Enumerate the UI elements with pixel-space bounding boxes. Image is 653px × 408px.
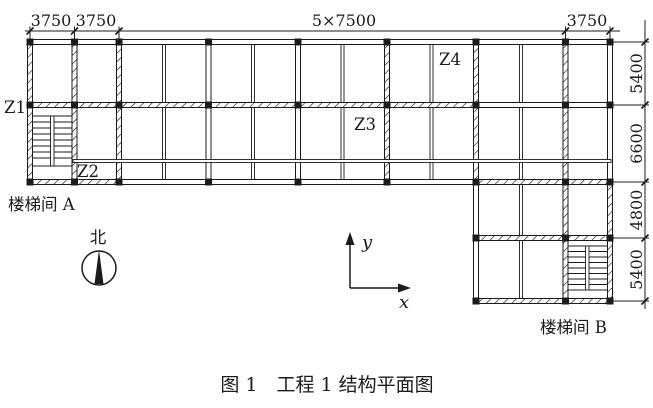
structural-plan-figure: 3750 3750 5×7500 3750 5400 6600 4800 540… bbox=[0, 0, 653, 408]
column-label-z4: Z4 bbox=[439, 50, 461, 69]
compass-needle-icon bbox=[95, 250, 104, 284]
y-axis-arrow-icon bbox=[346, 232, 355, 245]
dimension-line-right: 5400 6600 4800 5400 bbox=[613, 20, 649, 309]
plan-drawing: 3750 3750 5×7500 3750 5400 6600 4800 540… bbox=[0, 0, 653, 408]
staircase-a bbox=[33, 116, 72, 166]
column-label-z1: Z1 bbox=[4, 98, 26, 117]
staircase-b bbox=[568, 246, 607, 290]
dim-right-3: 4800 bbox=[627, 190, 646, 231]
dim-right-1: 5400 bbox=[627, 53, 646, 94]
stairwell-b-label: 楼梯间 B bbox=[540, 318, 607, 337]
north-label: 北 bbox=[90, 228, 107, 247]
xy-axes: y x bbox=[346, 232, 412, 313]
column-label-z3: Z3 bbox=[354, 115, 376, 134]
dim-right-2: 6600 bbox=[627, 123, 646, 164]
axis-label-x: x bbox=[399, 292, 409, 313]
figure-caption: 图 1 工程 1 结构平面图 bbox=[220, 374, 433, 396]
plain-vertical-walls bbox=[206, 40, 613, 304]
column-label-z2: Z2 bbox=[77, 162, 99, 181]
north-compass: 北 bbox=[82, 228, 116, 285]
dim-top-2: 3750 bbox=[76, 11, 117, 30]
dim-top-3: 5×7500 bbox=[312, 11, 376, 30]
dim-right-4: 5400 bbox=[627, 249, 646, 290]
dim-top-4: 3750 bbox=[567, 11, 608, 30]
axis-label-y: y bbox=[361, 232, 373, 253]
secondary-vertical-beams bbox=[163, 43, 523, 299]
dim-top-1: 3750 bbox=[31, 11, 72, 30]
stairwell-a-label: 楼梯间 A bbox=[8, 195, 76, 214]
floor-plan bbox=[27, 39, 614, 305]
dimension-line-top: 3750 3750 5×7500 3750 bbox=[25, 11, 620, 40]
columns bbox=[27, 39, 614, 305]
